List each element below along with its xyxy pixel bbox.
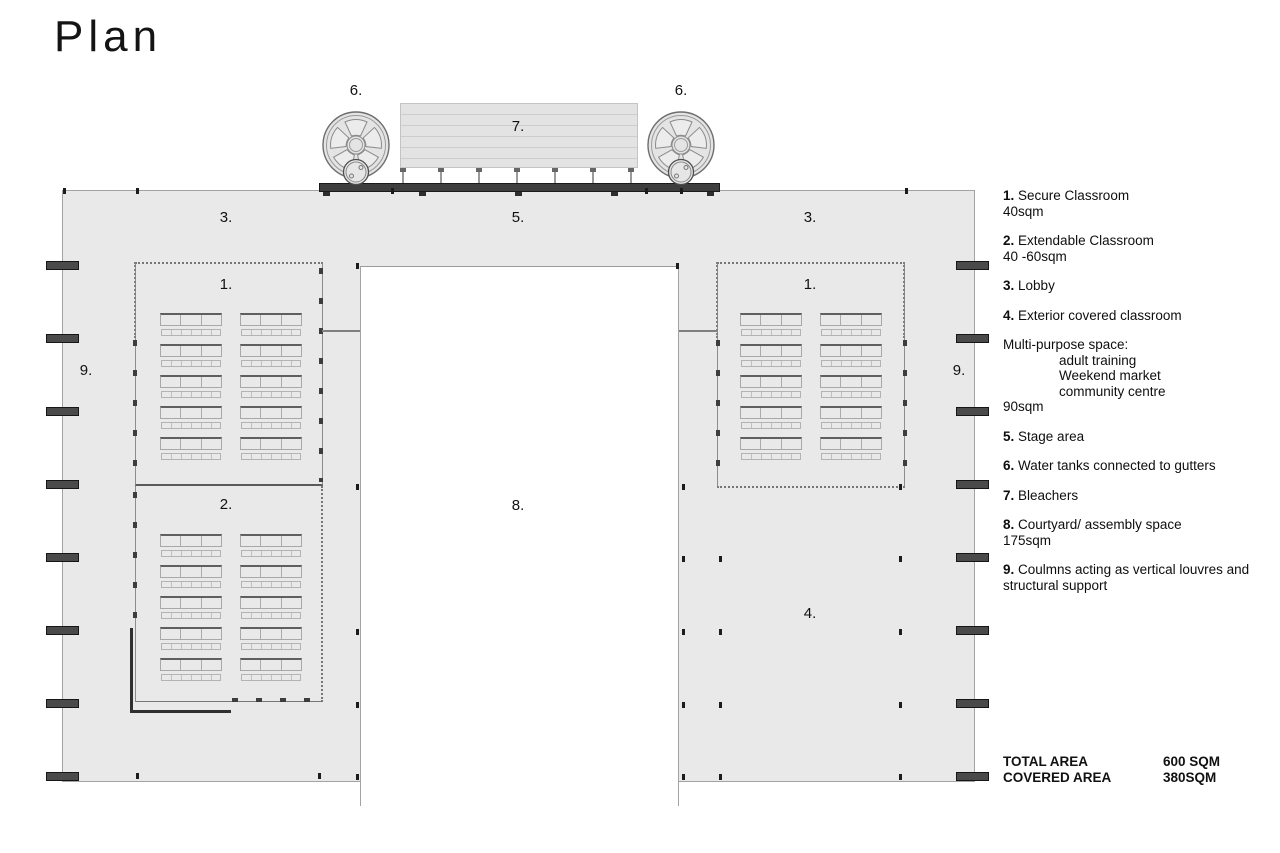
legend-num: 2. [1003, 233, 1014, 248]
legend-detail: 40sqm [1003, 204, 1271, 220]
plan-label-6-left: 6. [350, 82, 363, 99]
legend-label: Courtyard/ assembly space [1018, 517, 1182, 532]
legend-item-5: 5. Stage area [1003, 429, 1271, 445]
desk-grid-room2-left [160, 534, 302, 682]
courtyard-area [360, 266, 679, 806]
desk [160, 627, 222, 651]
desk [160, 534, 222, 558]
legend-item-2: 2. Extendable Classroom 40 -60sqm [1003, 233, 1271, 264]
covered-area-value: 380SQM [1163, 770, 1216, 786]
legend-num: 1. [1003, 188, 1014, 203]
legend-num: 5. [1003, 429, 1014, 444]
desk [160, 658, 222, 682]
plan-label-9-right: 9. [953, 362, 966, 379]
desk [820, 437, 882, 461]
louvre-column [956, 334, 989, 343]
louvre-column [46, 334, 79, 343]
legend-label: Bleachers [1018, 488, 1078, 503]
extended-wall [130, 628, 133, 713]
desk [160, 344, 222, 368]
legend-item-1: 1. Secure Classroom 40sqm [1003, 188, 1271, 219]
legend-num: 9. [1003, 562, 1014, 577]
water-tank-icon [646, 110, 716, 194]
louvre-column [956, 699, 989, 708]
legend-num: 6. [1003, 458, 1014, 473]
desk [740, 437, 802, 461]
gutter-foot [515, 192, 522, 196]
total-area-row: TOTAL AREA 600 SQM [1003, 754, 1253, 770]
legend-label: Extendable Classroom [1018, 233, 1154, 248]
desk [240, 406, 302, 430]
desk [740, 344, 802, 368]
louvre-wall [903, 262, 905, 338]
legend-option: community centre [1003, 384, 1271, 400]
desk-grid-room1-right [740, 313, 882, 461]
legend-detail: 40 -60sqm [1003, 249, 1271, 265]
louvre-column [46, 553, 79, 562]
water-tank-icon [321, 110, 391, 194]
plan-label-8: 8. [512, 497, 525, 514]
legend-item-4: 4. Exterior covered classroom [1003, 308, 1271, 324]
wall-posts [903, 340, 907, 486]
plan-label-2: 2. [220, 496, 233, 513]
louvre-column [956, 772, 989, 781]
legend-detail: 175sqm [1003, 533, 1271, 549]
page-title: Plan [54, 12, 162, 62]
plan-label-5: 5. [512, 209, 525, 226]
wall-posts [319, 268, 323, 482]
legend-item-6: 6. Water tanks connected to gutters [1003, 458, 1271, 474]
desk [240, 437, 302, 461]
legend-label: Water tanks connected to gutters [1018, 458, 1216, 473]
plan-label-1-left: 1. [220, 276, 233, 293]
legend-item-multipurpose: Multi-purpose space: adult training Week… [1003, 337, 1271, 415]
louvre-column [46, 626, 79, 635]
desk [240, 344, 302, 368]
plan-label-6-right: 6. [675, 82, 688, 99]
wall-posts [232, 698, 320, 702]
desk [240, 596, 302, 620]
desk [740, 406, 802, 430]
total-area-label: TOTAL AREA [1003, 754, 1163, 770]
legend-label: Stage area [1018, 429, 1084, 444]
legend-item-9: 9. Coulmns acting as vertical louvres an… [1003, 562, 1271, 593]
legend-item-3: 3. Lobby [1003, 278, 1271, 294]
louvre-column [46, 407, 79, 416]
desk [160, 437, 222, 461]
plan-label-1-right: 1. [804, 276, 817, 293]
partition-stub [322, 330, 360, 332]
legend-num: 7. [1003, 488, 1014, 503]
desk [820, 375, 882, 399]
plan-label-7: 7. [512, 118, 525, 135]
louvre-column [956, 407, 989, 416]
legend-label: Secure Classroom [1018, 188, 1129, 203]
louvre-column [956, 553, 989, 562]
legend-label: Exterior covered classroom [1018, 308, 1182, 323]
legend-detail: 90sqm [1003, 399, 1271, 415]
desk [740, 375, 802, 399]
legend: 1. Secure Classroom 40sqm 2. Extendable … [1003, 188, 1271, 607]
desk [160, 375, 222, 399]
floor-plan-sheet: Plan [0, 0, 1280, 853]
desk [160, 565, 222, 589]
bleacher-posts [402, 168, 636, 183]
desk [240, 313, 302, 337]
legend-label: Lobby [1018, 278, 1055, 293]
desk [820, 344, 882, 368]
total-area-value: 600 SQM [1163, 754, 1220, 770]
plan-label-9-left: 9. [80, 362, 93, 379]
covered-area-row: COVERED AREA 380SQM [1003, 770, 1253, 786]
desk [240, 565, 302, 589]
wall-posts [133, 492, 137, 628]
legend-num: 3. [1003, 278, 1014, 293]
gutter-foot [611, 192, 618, 196]
desk [820, 313, 882, 337]
legend-label: Multi-purpose space: [1003, 337, 1128, 352]
desk [820, 406, 882, 430]
louvre-wall [134, 262, 136, 338]
wall-posts [716, 340, 720, 486]
gutter-foot [419, 192, 426, 196]
legend-option: Weekend market [1003, 368, 1271, 384]
desk [240, 375, 302, 399]
desk-grid-room1-left [160, 313, 302, 461]
legend-num: 4. [1003, 308, 1014, 323]
legend-num: 8. [1003, 517, 1014, 532]
extended-wall [130, 710, 231, 713]
louvre-column [46, 261, 79, 270]
desk [240, 658, 302, 682]
desk [160, 313, 222, 337]
legend-label: Coulmns acting as vertical louvres and s… [1003, 562, 1249, 593]
legend-item-8: 8. Courtyard/ assembly space 175sqm [1003, 517, 1271, 548]
partition-stub [679, 330, 717, 332]
plan-label-3-left: 3. [220, 209, 233, 226]
covered-area-label: COVERED AREA [1003, 770, 1163, 786]
area-totals: TOTAL AREA 600 SQM COVERED AREA 380SQM [1003, 754, 1253, 786]
wall-posts [133, 340, 137, 486]
desk [240, 534, 302, 558]
plan-label-3-right: 3. [804, 209, 817, 226]
legend-item-7: 7. Bleachers [1003, 488, 1271, 504]
legend-option: adult training [1003, 353, 1271, 369]
louvre-column [956, 261, 989, 270]
desk [240, 627, 302, 651]
plan-label-4: 4. [804, 605, 817, 622]
bleachers [400, 103, 638, 168]
louvre-wall [716, 262, 718, 338]
desk [740, 313, 802, 337]
desk [160, 406, 222, 430]
desk [160, 596, 222, 620]
louvre-column [46, 772, 79, 781]
louvre-column [46, 699, 79, 708]
louvre-column [956, 626, 989, 635]
louvre-column [46, 480, 79, 489]
louvre-column [956, 480, 989, 489]
